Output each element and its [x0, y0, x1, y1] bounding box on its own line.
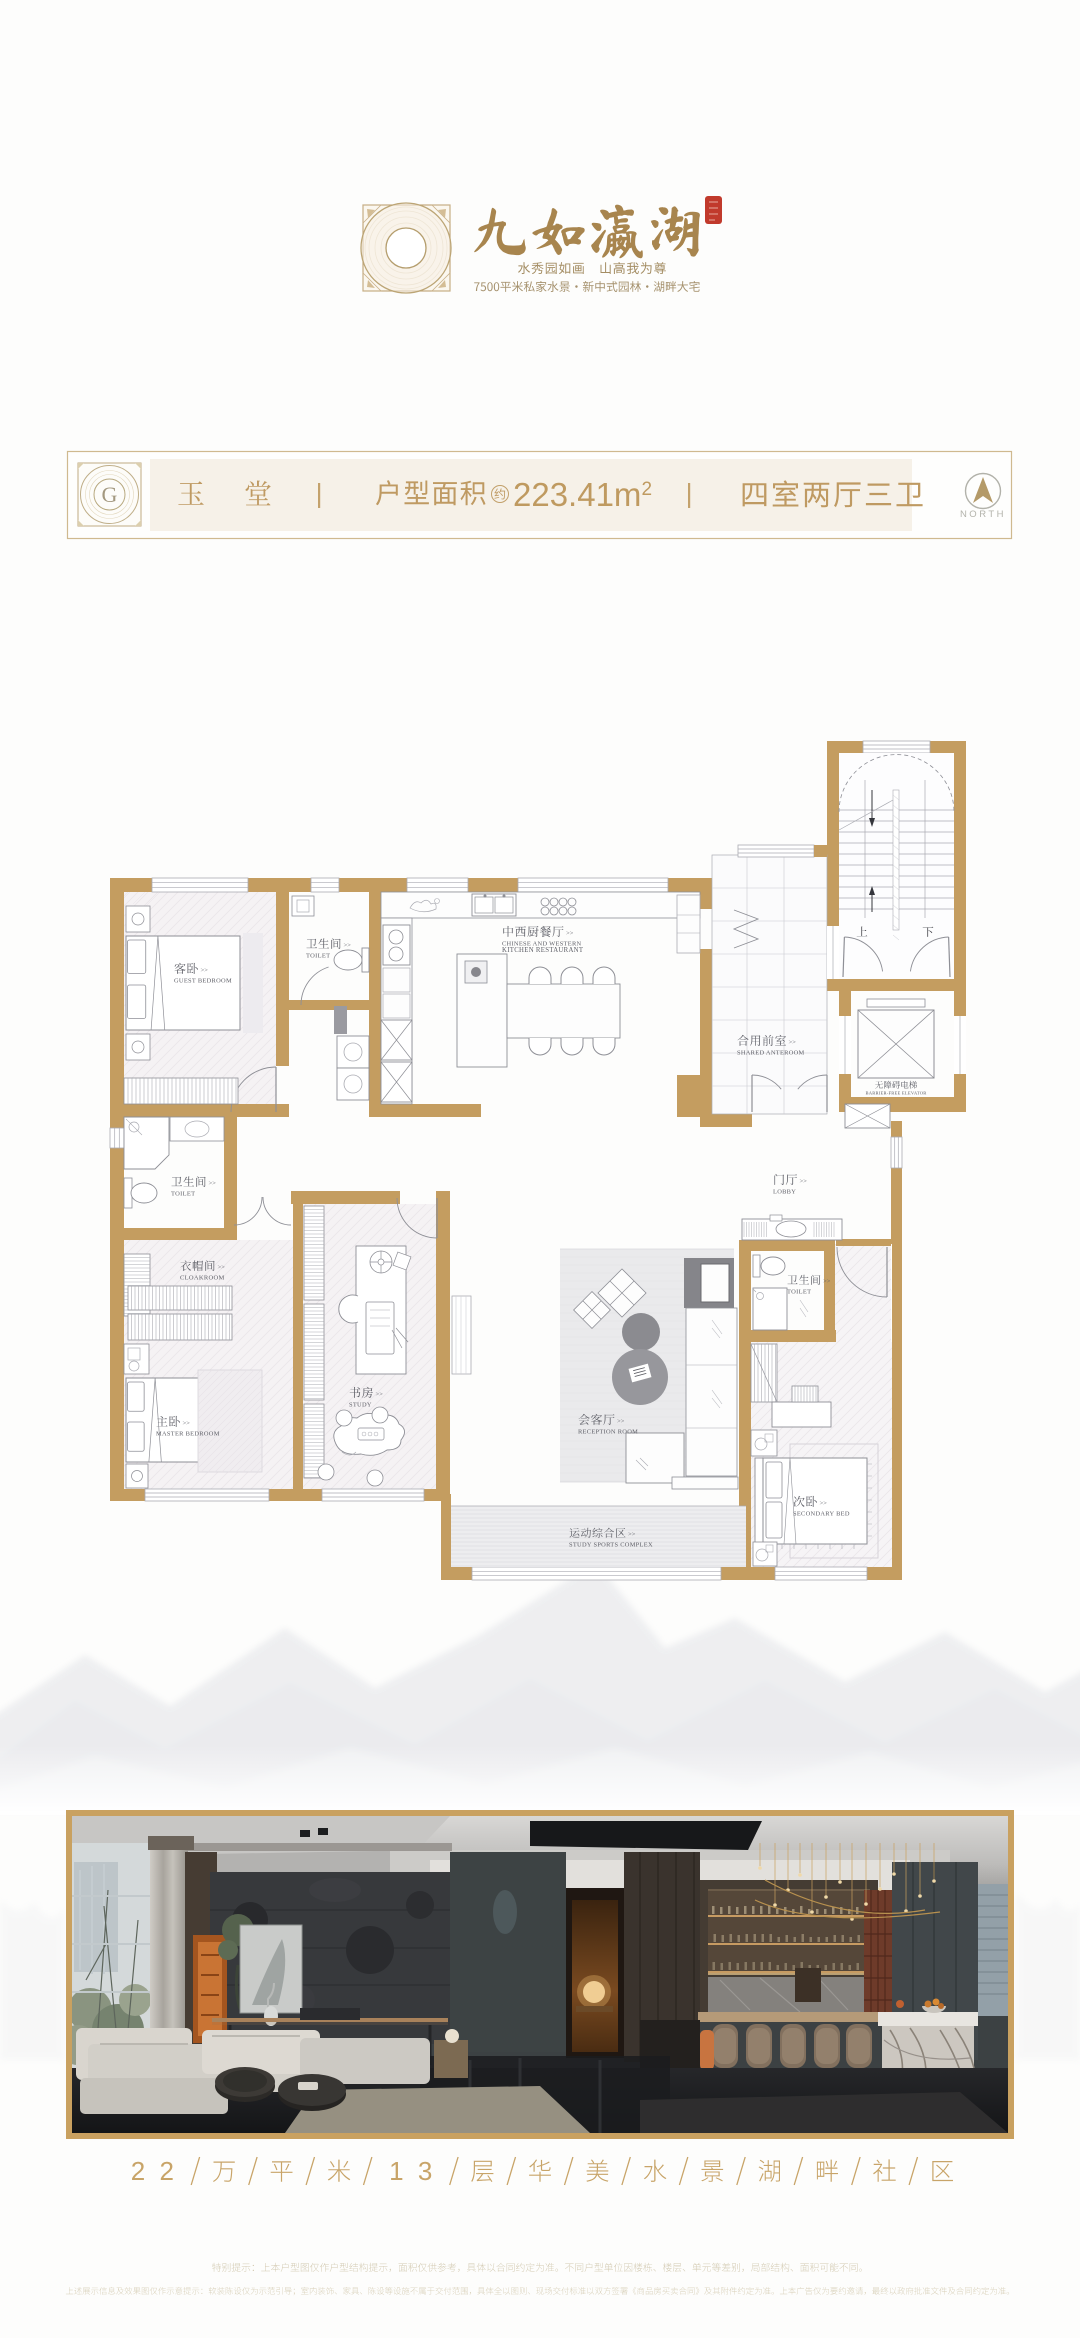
svg-text:CLOAKROOM: CLOAKROOM	[180, 1275, 225, 1282]
svg-text:TOILET: TOILET	[306, 953, 330, 960]
svg-text:>>: >>	[218, 1264, 226, 1271]
svg-text:>>: >>	[566, 930, 574, 937]
svg-text:TOILET: TOILET	[171, 1191, 195, 1198]
svg-text:MASTER BEDROOM: MASTER BEDROOM	[156, 1431, 220, 1438]
svg-text:G: G	[102, 482, 118, 507]
svg-text:>>: >>	[789, 1039, 797, 1046]
svg-text:>>: >>	[209, 1180, 217, 1187]
svg-text:RECEPTION ROOM: RECEPTION ROOM	[578, 1429, 638, 1436]
svg-text:TOILET: TOILET	[787, 1289, 811, 1296]
svg-text:>>: >>	[800, 1178, 808, 1185]
svg-text:LOBBY: LOBBY	[773, 1189, 796, 1196]
svg-text:>>: >>	[823, 1278, 831, 1285]
svg-text:STUDY: STUDY	[349, 1402, 372, 1409]
svg-text:GUEST BEDROOM: GUEST BEDROOM	[174, 978, 232, 985]
svg-text:SHARED ANTEROOM: SHARED ANTEROOM	[737, 1050, 805, 1057]
svg-text:SECONDARY BED: SECONDARY BED	[793, 1511, 850, 1518]
svg-text:2: 2	[131, 2156, 145, 2186]
svg-text:>>: >>	[344, 942, 352, 949]
svg-text:>>: >>	[376, 1391, 384, 1398]
svg-text:223.41m2: 223.41m2	[513, 476, 652, 513]
svg-text:>>: >>	[201, 967, 209, 974]
svg-text:>>: >>	[183, 1420, 191, 1427]
svg-text:>>: >>	[820, 1500, 828, 1507]
svg-text:NORTH: NORTH	[960, 509, 1006, 520]
svg-text:BARRIER-FREE ELEVATOR: BARRIER-FREE ELEVATOR	[865, 1091, 927, 1096]
svg-text:>>: >>	[617, 1418, 625, 1425]
svg-text:STUDY SPORTS COMPLEX: STUDY SPORTS COMPLEX	[569, 1542, 653, 1549]
svg-text:2: 2	[159, 2156, 173, 2186]
svg-text:>>: >>	[628, 1531, 636, 1538]
svg-text:1: 1	[389, 2156, 403, 2186]
svg-text:KITCHEN RESTAURANT: KITCHEN RESTAURANT	[502, 947, 584, 954]
svg-text:3: 3	[418, 2156, 432, 2186]
